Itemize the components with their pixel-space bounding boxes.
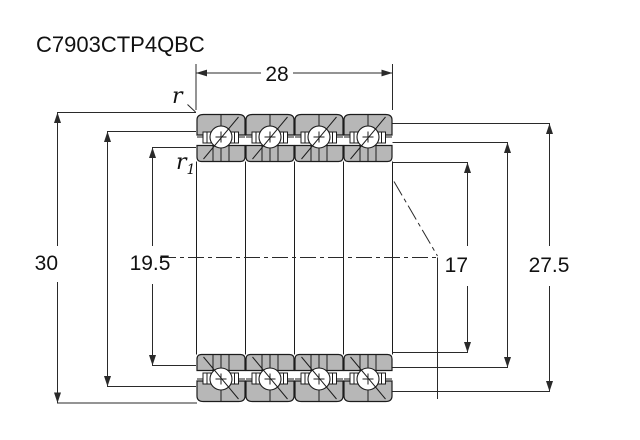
dim-label-shaft-abutment: 19.5 xyxy=(130,252,171,275)
bearing-section-top-1 xyxy=(197,115,245,162)
arrow-left xyxy=(196,70,207,77)
chamfer-label-r1: r1 xyxy=(176,150,195,178)
bearing-section-bottom-4 xyxy=(344,355,392,402)
bearing-drawing-page: 28 30 19.5 17 xyxy=(0,0,640,440)
dim-label-total-width: 28 xyxy=(265,63,288,86)
bearing-section-top-2 xyxy=(246,115,294,162)
dim-label-bore: 17 xyxy=(445,254,468,277)
arrow-right xyxy=(382,70,393,77)
dim-shaft-abutment: 19.5 xyxy=(130,148,196,366)
bearing-section-top-4 xyxy=(344,115,392,162)
dim-total-width: 28 xyxy=(196,63,393,110)
dim-label-housing-abutment: 27.5 xyxy=(529,254,570,277)
bearing-section-top-3 xyxy=(295,115,343,162)
page-title: C7903CTP4QBC xyxy=(36,32,205,57)
technical-drawing: 28 30 19.5 17 xyxy=(0,0,640,440)
dim-label-outer-diameter: 30 xyxy=(35,252,58,275)
bearing-section-bottom-3 xyxy=(295,355,343,402)
bearing-section-bottom-2 xyxy=(246,355,294,402)
bearing-section-bottom-1 xyxy=(197,355,245,402)
chamfer-label-r: r xyxy=(172,84,184,109)
